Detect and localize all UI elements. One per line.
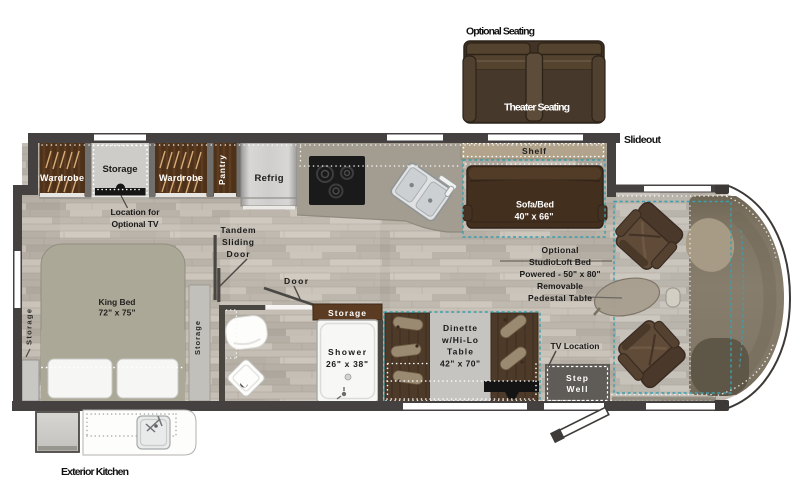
svg-text:Exterior Kitchen: Exterior Kitchen [61,466,129,478]
svg-text:Door: Door [284,276,309,286]
svg-text:Pantry: Pantry [217,155,227,185]
svg-text:Wardrobe: Wardrobe [159,173,203,183]
svg-text:Optional TV: Optional TV [112,219,159,229]
svg-text:TV Location: TV Location [551,341,600,351]
svg-text:Location for: Location for [111,207,161,217]
svg-text:42" x 70": 42" x 70" [440,359,480,369]
svg-text:Storage: Storage [103,164,138,175]
svg-text:StudioLoft Bed: StudioLoft Bed [529,257,591,267]
svg-text:Refrig: Refrig [255,173,284,184]
svg-text:40" x 66": 40" x 66" [515,212,554,222]
svg-text:Table: Table [447,347,473,357]
svg-text:Theater Seating: Theater Seating [504,102,570,114]
svg-text:Wardrobe: Wardrobe [40,173,84,183]
svg-text:26" x 38": 26" x 38" [326,359,368,369]
svg-text:Optional: Optional [542,245,579,255]
svg-text:Powered - 50" x 80": Powered - 50" x 80" [520,269,601,279]
svg-text:Storage: Storage [193,321,202,355]
svg-text:Dinette: Dinette [443,323,477,333]
svg-text:Tandem: Tandem [221,225,256,235]
svg-text:72" x 75": 72" x 75" [99,308,136,318]
svg-text:Door: Door [227,249,251,259]
svg-text:Shelf: Shelf [522,146,546,156]
svg-text:w/Hi-Lo: w/Hi-Lo [441,335,478,345]
svg-text:Removable: Removable [537,281,583,291]
svg-text:Storage: Storage [328,308,366,318]
svg-text:Pedestal Table: Pedestal Table [528,293,592,303]
svg-text:Slideout: Slideout [624,134,662,146]
svg-text:Step: Step [566,373,588,383]
svg-text:Well: Well [567,384,588,394]
svg-text:Sofa/Bed: Sofa/Bed [516,200,554,210]
svg-text:Sliding: Sliding [222,237,254,247]
svg-text:Optional Seating: Optional Seating [466,26,535,38]
svg-text:King Bed: King Bed [99,297,136,307]
